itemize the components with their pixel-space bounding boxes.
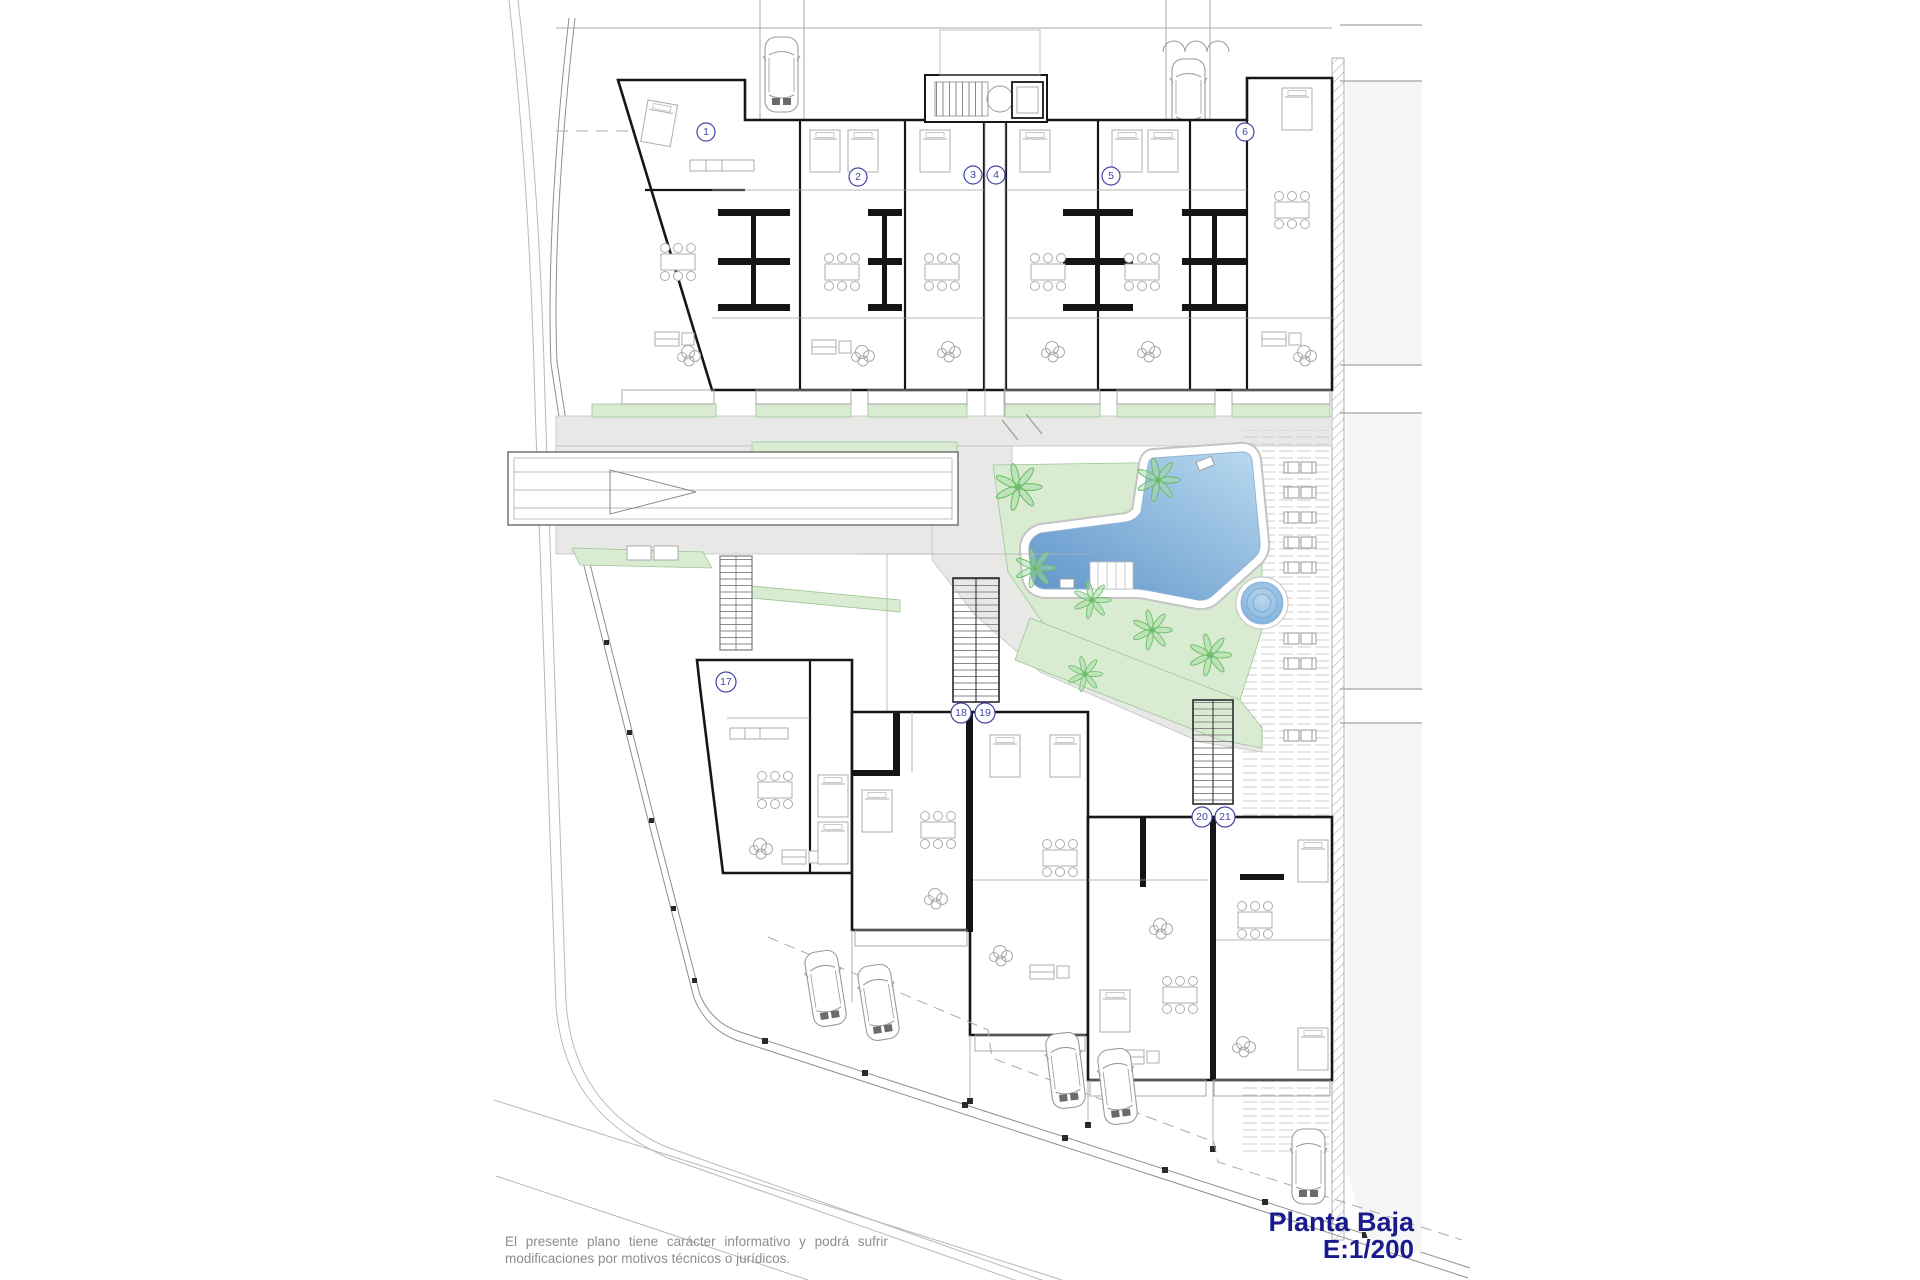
svg-text:3: 3	[970, 169, 976, 181]
staircase-18-19	[953, 578, 999, 702]
plan-scale: E:1/200	[1323, 1234, 1414, 1264]
site-plan-drawing: 1 2 3 4 5 6 17 18 19 20 21 Planta Baja E…	[0, 0, 1920, 1280]
plan-title: Planta Baja	[1268, 1207, 1415, 1237]
svg-text:20: 20	[1196, 811, 1208, 823]
pool-steps	[1090, 562, 1133, 589]
disclaimer-line-2: modificaciones por motivos técnicos o ju…	[505, 1251, 790, 1266]
pool-bench-2	[1060, 579, 1074, 588]
staircase-20-21	[1193, 700, 1233, 804]
entrance-canopy-arcs	[1163, 41, 1229, 52]
balcony-slabs	[622, 390, 1330, 404]
unit-label-20: 20	[1192, 807, 1212, 827]
unit-label-6: 6	[1236, 123, 1254, 141]
unit-label-3: 3	[964, 166, 982, 184]
building-top-block	[618, 78, 1332, 416]
svg-text:4: 4	[993, 169, 999, 181]
title-block: Planta Baja E:1/200	[1268, 1207, 1415, 1264]
unit-label-21: 21	[1215, 807, 1235, 827]
floor-plan-page: 1 2 3 4 5 6 17 18 19 20 21 Planta Baja E…	[0, 0, 1920, 1280]
staircase-bottom-left	[720, 556, 752, 650]
unit-label-17: 17	[716, 672, 736, 692]
svg-text:1: 1	[703, 126, 709, 138]
party-wall-hatch	[1332, 58, 1344, 1240]
building-units-20-21	[1088, 817, 1332, 1080]
svg-text:5: 5	[1108, 170, 1114, 182]
disclaimer: El presente plano tiene carácter informa…	[505, 1234, 888, 1266]
unit-label-18: 18	[951, 703, 971, 723]
svg-text:6: 6	[1242, 126, 1248, 138]
unit-label-1: 1	[697, 123, 715, 141]
staircase-top	[925, 30, 1047, 122]
unit-label-4: 4	[987, 166, 1005, 184]
unit-label-19: 19	[975, 703, 995, 723]
jacuzzi	[1236, 577, 1288, 629]
parked-car-top-1	[763, 37, 800, 112]
svg-text:2: 2	[855, 171, 861, 183]
svg-text:18: 18	[955, 707, 967, 719]
unit-label-2: 2	[849, 168, 867, 186]
svg-text:17: 17	[720, 676, 732, 688]
unit-label-5: 5	[1102, 167, 1120, 185]
svg-text:19: 19	[979, 707, 991, 719]
disclaimer-line-1: El presente plano tiene carácter informa…	[505, 1234, 888, 1249]
building-unit-17	[697, 660, 852, 873]
svg-text:21: 21	[1219, 811, 1231, 823]
adjacent-plots-band	[1340, 25, 1422, 1252]
